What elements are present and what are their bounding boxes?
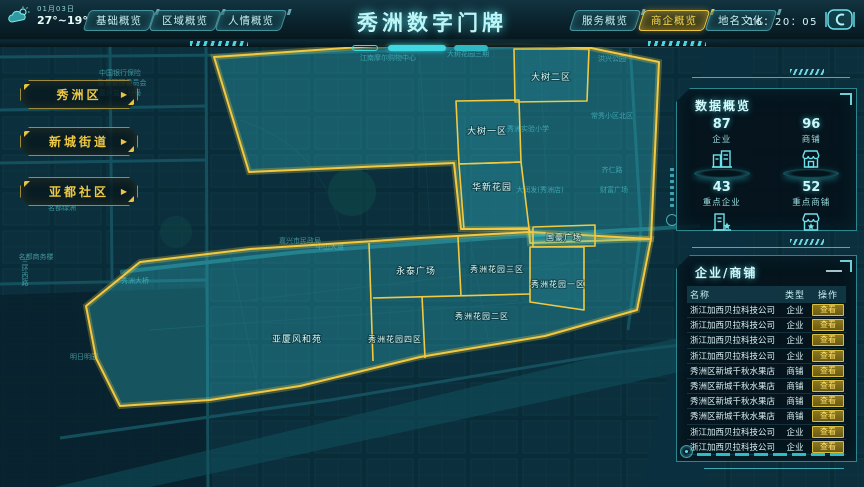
icon-pedestal <box>783 169 839 178</box>
table-row: 秀洲区新城千秋水果店 商铺 查看 <box>687 409 846 424</box>
header-pill <box>388 45 446 51</box>
sidebar-item-xincheng-street[interactable]: 新城街道 ▶ <box>20 127 138 156</box>
cell-name: 浙江加西贝拉科技公司 <box>687 304 779 316</box>
tab-label: 服务概览 <box>582 13 628 28</box>
region-label: 亚厦风和苑 <box>272 333 322 345</box>
icon-pedestal <box>694 169 750 178</box>
region-label: 秀洲花园二区 <box>455 311 509 321</box>
stat-label: 重点商铺 <box>767 196 857 208</box>
list-scrollbar[interactable] <box>697 453 847 456</box>
chevron-right-icon: ▶ <box>121 90 127 99</box>
cell-name: 浙江加西贝拉科技公司 <box>687 350 779 362</box>
sidebar-item-label: 亚都社区 <box>49 183 109 200</box>
stat-shop: 96 商铺 <box>767 115 857 178</box>
cell-name: 秀洲区新城千秋水果店 <box>687 380 779 392</box>
view-button[interactable]: 查看 <box>812 441 844 453</box>
store-star-icon <box>798 210 824 234</box>
table-row: 秀洲区新城千秋水果店 商铺 查看 <box>687 364 846 379</box>
map-park-2 <box>160 216 192 248</box>
store-icon <box>798 147 824 171</box>
panel-title: 数据概览 <box>677 89 856 114</box>
map-label: 三环西路 <box>21 258 29 287</box>
tab-label: 人情概览 <box>228 13 274 28</box>
tab-service-overview[interactable]: 服务概览 <box>569 10 642 31</box>
view-button[interactable]: 查看 <box>812 426 844 438</box>
table-row: 浙江加西贝拉科技公司 企业 查看 <box>687 349 846 364</box>
region-label: 大树二区 <box>531 71 571 83</box>
building-star-icon <box>709 210 735 234</box>
dashboard-screen: 江南摩尔购物中心 大树花园三期 洪兴公园 常秀小区北区 秀洲实验小学 大润发(秀… <box>0 0 864 487</box>
panel-title-text: 企业/商铺 <box>695 266 757 280</box>
clock-text: 16：20：05 <box>748 13 818 28</box>
region-label: 秀洲花园三区 <box>470 264 524 274</box>
sidebar-item-label: 新城街道 <box>49 133 109 150</box>
cell-type: 商铺 <box>779 380 811 392</box>
chevron-right-icon: ▶ <box>121 187 127 196</box>
region-label: 国豪广场 <box>546 232 582 242</box>
sidebar-item-yadu-community[interactable]: 亚都社区 ▶ <box>20 177 138 206</box>
weather-widget: 01月03日 27°~19° <box>8 5 88 28</box>
tab-business-overview[interactable]: 商企概览 <box>638 10 711 31</box>
table-row: 秀洲区新城千秋水果店 商铺 查看 <box>687 394 846 409</box>
temperature-text: 27°~19° <box>37 14 88 28</box>
table-row: 浙江加西贝拉科技公司 企业 查看 <box>687 318 846 333</box>
panel-deco-middle <box>692 238 850 248</box>
parcel-huaxin[interactable] <box>459 162 529 229</box>
cell-type: 企业 <box>779 319 811 331</box>
table-row: 浙江加西贝拉科技公司 企业 查看 <box>687 333 846 348</box>
cell-type: 企业 <box>779 334 811 346</box>
table-row: 浙江加西贝拉科技公司 企业 查看 <box>687 425 846 440</box>
cell-name: 秀洲区新城千秋水果店 <box>687 395 779 407</box>
table-row: 浙江加西贝拉科技公司 企业 查看 <box>687 303 846 318</box>
cell-type: 企业 <box>779 426 811 438</box>
view-button[interactable]: 查看 <box>812 304 844 316</box>
cell-name: 浙江加西贝拉科技公司 <box>687 334 779 346</box>
enterprise-shop-panel: 企业/商铺 名称 类型 操作 浙江加西贝拉科技公司 企业 查看 浙江加西贝拉科技… <box>676 255 857 462</box>
header-pill <box>352 45 378 51</box>
stat-enterprise: 87 企业 <box>677 115 767 178</box>
cell-name: 秀洲区新城千秋水果店 <box>687 365 779 377</box>
view-button[interactable]: 查看 <box>812 334 844 346</box>
tab-people-overview[interactable]: 人情概览 <box>215 10 288 31</box>
map-label: 中国银行保险 <box>99 68 141 77</box>
region-label: 大树一区 <box>467 125 507 137</box>
cell-type: 企业 <box>779 350 811 362</box>
parcel-xiuzhou-1[interactable] <box>530 247 584 310</box>
cell-type: 商铺 <box>779 395 811 407</box>
view-button[interactable]: 查看 <box>812 350 844 362</box>
data-overview-panel: 数据概览 87 企业 96 商铺 <box>676 88 857 231</box>
cell-name: 秀洲区新城千秋水果店 <box>687 410 779 422</box>
region-label: 秀洲花园四区 <box>368 334 422 344</box>
tab-label: 区域概览 <box>162 13 208 28</box>
building-icon <box>709 147 735 171</box>
header-pill <box>454 45 488 51</box>
title-dash-deco <box>826 270 842 272</box>
stat-label: 重点企业 <box>677 196 767 208</box>
view-button[interactable]: 查看 <box>812 365 844 377</box>
tab-region-overview[interactable]: 区域概览 <box>149 10 222 31</box>
gear-icon <box>680 445 693 458</box>
header-hatch-left <box>190 41 248 46</box>
page-title: 秀洲数字门牌 <box>357 7 507 37</box>
col-header-action: 操作 <box>811 288 845 301</box>
stat-value: 43 <box>677 180 767 195</box>
sidebar-item-label: 秀洲区 <box>56 86 101 103</box>
stat-value: 52 <box>767 180 857 195</box>
panel-title: 企业/商铺 <box>677 256 856 281</box>
cell-name: 浙江加西贝拉科技公司 <box>687 441 779 453</box>
cell-name: 浙江加西贝拉科技公司 <box>687 319 779 331</box>
view-button[interactable]: 查看 <box>812 319 844 331</box>
stats-grid: 87 企业 96 商铺 <box>677 115 856 241</box>
view-button[interactable]: 查看 <box>812 380 844 392</box>
map-park <box>328 168 376 216</box>
region-label: 华新花园 <box>472 181 512 193</box>
stat-value: 96 <box>767 117 857 132</box>
cell-type: 企业 <box>779 441 811 453</box>
view-button[interactable]: 查看 <box>812 410 844 422</box>
region-label: 永泰广场 <box>396 265 436 277</box>
panel-deco-bottom <box>704 468 844 474</box>
view-button[interactable]: 查看 <box>812 395 844 407</box>
panel-deco-top <box>692 66 850 78</box>
tab-label: 商企概览 <box>651 13 697 28</box>
stat-label: 企业 <box>677 133 767 145</box>
cell-type: 商铺 <box>779 365 811 377</box>
cell-type: 商铺 <box>779 410 811 422</box>
tab-label: 基础概览 <box>96 13 142 28</box>
header-hatch-right <box>648 41 706 46</box>
col-header-name: 名称 <box>687 288 779 301</box>
exit-icon[interactable] <box>824 8 856 31</box>
date-text: 01月03日 <box>37 5 88 14</box>
enterprise-table: 名称 类型 操作 浙江加西贝拉科技公司 企业 查看 浙江加西贝拉科技公司 企业 … <box>687 286 846 455</box>
tab-basic-overview[interactable]: 基础概览 <box>83 10 156 31</box>
cell-type: 企业 <box>779 304 811 316</box>
side-tick-deco <box>670 168 674 210</box>
chevron-right-icon: ▶ <box>121 137 127 146</box>
stat-value: 87 <box>677 117 767 132</box>
region-label: 秀洲花园一区 <box>531 279 585 289</box>
table-row: 秀洲区新城千秋水果店 商铺 查看 <box>687 379 846 394</box>
col-header-type: 类型 <box>779 288 811 301</box>
weather-cloud-icon <box>8 5 32 27</box>
cell-name: 浙江加西贝拉科技公司 <box>687 426 779 438</box>
stat-label: 商铺 <box>767 133 857 145</box>
sidebar-item-xiuzhou-district[interactable]: 秀洲区 ▶ <box>20 80 138 109</box>
table-header-row: 名称 类型 操作 <box>687 286 846 303</box>
